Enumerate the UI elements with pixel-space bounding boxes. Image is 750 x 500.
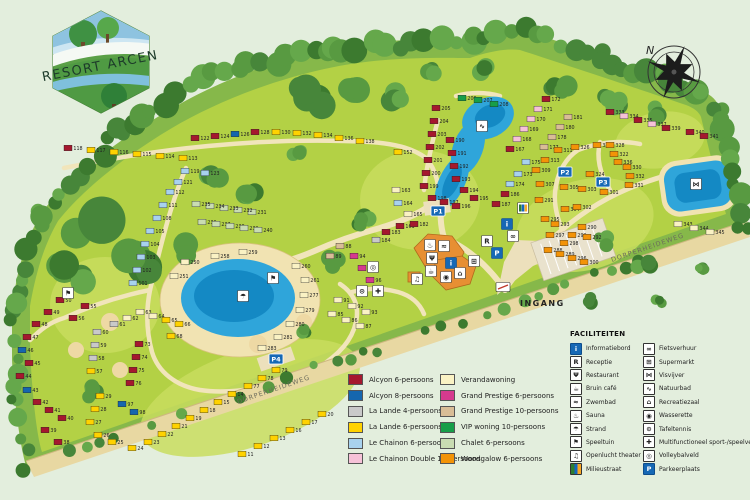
svg-text:42: 42 [42, 400, 48, 406]
svg-text:164: 164 [403, 201, 412, 207]
cabin-unit: 12 [254, 443, 270, 450]
facility-item-parkeerplaats: PParkeerplaats [643, 463, 750, 476]
svg-text:152: 152 [403, 150, 412, 156]
svg-text:208: 208 [499, 102, 508, 108]
svg-text:330: 330 [632, 165, 641, 171]
svg-text:201: 201 [433, 158, 442, 164]
svg-text:302: 302 [582, 205, 591, 211]
forest-blob [15, 434, 26, 445]
wasserette-icon: ◉ [441, 272, 452, 283]
forest-blob [94, 145, 117, 168]
forest-blob [354, 212, 368, 226]
svg-text:171: 171 [543, 107, 552, 113]
openlucht-theater-icon: ♫ [570, 450, 582, 462]
svg-text:◎: ◎ [370, 264, 376, 272]
svg-text:∿: ∿ [479, 123, 485, 131]
svg-text:11: 11 [247, 452, 253, 458]
svg-text:200: 200 [431, 171, 440, 177]
informatiebord-icon: i [502, 219, 513, 230]
forest-blob [430, 25, 455, 50]
forest-blob [483, 311, 491, 319]
svg-text:27: 27 [95, 420, 101, 426]
forest-blob [537, 25, 555, 43]
facility-label: Visvijver [659, 372, 684, 379]
svg-text:41: 41 [54, 408, 60, 414]
svg-text:102: 102 [142, 268, 151, 274]
svg-text:178: 178 [557, 135, 566, 141]
facility-label: Recreatiezaal [659, 399, 699, 406]
svg-text:29: 29 [105, 394, 111, 400]
svg-text:⚑: ⚑ [270, 275, 276, 283]
svg-text:108: 108 [162, 216, 171, 222]
forest-blob [82, 442, 93, 453]
volleybalveld-icon: ◎ [368, 262, 379, 273]
svg-text:187: 187 [501, 202, 510, 208]
cabin-unit: 117 [87, 147, 106, 154]
legend-label: Woodgalow 6-persoons [461, 455, 542, 463]
svg-text:132: 132 [302, 131, 311, 137]
facility-label: Parkeerplaats [659, 466, 700, 473]
facility-item-strand: ☂Strand [570, 422, 641, 435]
sauna-icon: ♨ [425, 240, 436, 251]
svg-text:25: 25 [117, 440, 123, 446]
svg-text:184: 184 [381, 238, 390, 244]
informatiebord-icon: i [570, 343, 582, 355]
facility-label: Sauna [586, 412, 605, 419]
svg-text:183: 183 [391, 230, 400, 236]
legend-swatch-vw [440, 374, 455, 385]
legend-swatch-l6 [348, 422, 363, 433]
svg-text:181: 181 [573, 115, 582, 121]
svg-text:⚑: ⚑ [65, 290, 71, 298]
forest-blob [49, 250, 79, 280]
tafeltennis-icon: ⊙ [643, 423, 655, 435]
svg-text:101: 101 [138, 281, 147, 287]
fietsverhuur-icon: ∞ [508, 231, 519, 242]
svg-text:12: 12 [263, 444, 269, 450]
forest-blob [498, 303, 511, 316]
svg-text:40: 40 [67, 416, 73, 422]
forest-blob [6, 293, 27, 314]
svg-text:298: 298 [569, 241, 578, 247]
svg-text:P3: P3 [598, 178, 607, 186]
facility-label: Receptie [586, 359, 612, 366]
legend-swatch-ch [440, 438, 455, 449]
svg-text:186: 186 [510, 192, 519, 198]
facility-item-fietsverhuur: ∞Fietsverhuur [643, 342, 750, 355]
forest-blob [695, 264, 703, 272]
legend-item-gp10: Grand Prestige 10-persoons [440, 404, 559, 420]
svg-text:196: 196 [461, 204, 470, 210]
svg-text:113: 113 [188, 156, 197, 162]
svg-text:i: i [506, 221, 508, 229]
forest-blob [341, 38, 367, 64]
legend-item-vw: Verandawoning [440, 372, 559, 388]
tafeltennis-icon: ⊙ [357, 286, 368, 297]
forest-blob [458, 319, 468, 329]
forest-blob [435, 321, 446, 332]
svg-text:39: 39 [50, 428, 56, 434]
forest-blob [8, 408, 27, 427]
recreatiezaal-icon: ⌂ [455, 268, 466, 279]
svg-text:297: 297 [555, 233, 564, 239]
svg-text:259: 259 [248, 250, 257, 256]
svg-text:114: 114 [165, 154, 174, 160]
svg-text:38: 38 [63, 440, 69, 446]
forest-blob [78, 197, 125, 244]
svg-text:119: 119 [190, 169, 199, 175]
svg-text:331: 331 [634, 183, 643, 189]
forest-blob [723, 163, 741, 181]
facility-label: Milieustraat [586, 466, 621, 473]
strand-icon: ☂ [570, 423, 582, 435]
legend-swatch-wg [440, 453, 455, 464]
forest-blob [30, 205, 52, 227]
facility-label: Multifunctioneel sport-/speelveld [659, 439, 750, 446]
facility-item-openlucht-theater: ♫Openlucht theater [570, 449, 641, 462]
svg-text:P: P [494, 250, 499, 258]
svg-text:169: 169 [529, 127, 538, 133]
forest-blob [107, 117, 128, 138]
facilities-legend-right: ∞Fietsverhuur⊞Supermarkt⋈Visvijver∿Natuu… [643, 342, 750, 476]
forest-blob [13, 354, 23, 364]
svg-text:124: 124 [220, 134, 229, 140]
visvijver-icon: ⋈ [691, 179, 702, 190]
svg-text:205: 205 [441, 106, 450, 112]
svg-text:199: 199 [429, 184, 438, 190]
svg-text:94: 94 [359, 254, 365, 260]
svg-text:300: 300 [589, 260, 598, 266]
svg-text:232: 232 [243, 208, 252, 214]
wasserette-icon: ◉ [643, 410, 655, 422]
svg-text:◉: ◉ [443, 274, 449, 282]
svg-text:22: 22 [167, 432, 173, 438]
forest-blob [147, 421, 156, 430]
svg-text:23: 23 [153, 440, 159, 446]
svg-text:46: 46 [27, 348, 33, 354]
compass-north-label: N [646, 44, 654, 57]
cabin-unit: 118 [64, 145, 83, 152]
legend-swatch-a6 [348, 374, 363, 385]
svg-text:292: 292 [592, 235, 601, 241]
forest-blob [17, 261, 34, 278]
svg-text:∞: ∞ [510, 233, 516, 241]
svg-text:88: 88 [345, 244, 351, 250]
svg-text:130: 130 [281, 130, 290, 136]
legend-label: Alcyon 6-persoons [369, 376, 434, 384]
forest-blob [426, 66, 442, 82]
svg-text:19: 19 [195, 416, 201, 422]
facility-label: Volleybalveld [659, 452, 699, 459]
openlucht-theater-icon: ♫ [412, 274, 423, 285]
legend-swatch-gp10 [440, 406, 455, 417]
svg-text:341: 341 [709, 134, 718, 140]
forest-blob [484, 20, 508, 44]
svg-text:87: 87 [365, 324, 371, 330]
compass-rose: N [638, 36, 710, 108]
svg-text:180: 180 [565, 125, 574, 131]
accommodation-legend-right: VerandawoningGrand Prestige 6-persoonsGr… [440, 372, 559, 467]
svg-text:283: 283 [267, 346, 276, 352]
facility-item-recreatiezaal: ⌂Recreatiezaal [643, 396, 750, 409]
svg-text:⊞: ⊞ [471, 258, 477, 266]
forest-blob [477, 60, 493, 76]
forest-blob [23, 443, 36, 456]
forest-blob [239, 185, 257, 203]
legend-item-vip: VIP woning 10-persoons [440, 419, 559, 435]
svg-text:⌂: ⌂ [457, 270, 462, 278]
cabin-unit: 24 [128, 445, 144, 452]
forest-blob [600, 90, 617, 107]
svg-text:62: 62 [132, 316, 138, 322]
forest-blob [583, 296, 595, 308]
sauna-icon: ♨ [570, 410, 582, 422]
svg-text:167: 167 [515, 147, 524, 153]
svg-text:R: R [484, 238, 490, 246]
svg-text:⋈: ⋈ [693, 181, 700, 189]
informatiebord-icon: i [446, 258, 457, 269]
speeltuin-icon: ⚑ [63, 288, 74, 299]
svg-text:79: 79 [281, 368, 287, 374]
svg-text:168: 168 [522, 137, 531, 143]
svg-text:279: 279 [305, 308, 314, 314]
svg-text:98: 98 [139, 410, 145, 416]
entrance-label: INGANG [520, 299, 565, 308]
legend-label: Verandawoning [461, 376, 515, 384]
svg-text:280: 280 [295, 322, 304, 328]
svg-text:61: 61 [119, 322, 125, 328]
svg-text:49: 49 [53, 310, 59, 316]
svg-text:93: 93 [371, 310, 377, 316]
svg-text:195: 195 [479, 196, 488, 202]
svg-text:175: 175 [531, 160, 540, 166]
forest-blob [4, 313, 17, 326]
facility-label: Zwembad [586, 399, 616, 406]
facility-item-informatiebord: iInformatiebord [570, 342, 641, 355]
facility-item-speeltuin: ⚑Speeltuin [570, 436, 641, 449]
svg-text:122: 122 [200, 136, 209, 142]
svg-text:126: 126 [240, 132, 249, 138]
facility-label: Informatiebord [586, 345, 631, 352]
svg-text:202: 202 [435, 145, 444, 151]
svg-text:191: 191 [457, 151, 466, 157]
svg-text:☕: ☕ [428, 268, 434, 276]
legend-label: Le Chainon 6-persoons [369, 439, 449, 447]
svg-text:235: 235 [201, 202, 210, 208]
svg-text:251: 251 [179, 274, 188, 280]
facility-label: Bruin café [586, 385, 617, 392]
svg-text:97: 97 [127, 402, 133, 408]
svg-text:P1: P1 [433, 207, 443, 215]
svg-text:138: 138 [365, 139, 374, 145]
receptie-icon: R [570, 356, 582, 368]
facilities-legend: FACILITEITEN iInformatiebordRReceptieΨRe… [570, 330, 748, 342]
svg-text:44: 44 [25, 374, 31, 380]
svg-text:≈: ≈ [441, 243, 447, 251]
parking-sign-p3: P3 [596, 177, 610, 187]
facility-label: Supermarkt [659, 359, 694, 366]
facility-item-volleybalveld: ◎Volleybalveld [643, 449, 750, 462]
forest-blob [600, 238, 614, 252]
resort-map-page: 1181171161151141131221241261281301321341… [0, 0, 750, 500]
receptie-icon: R [482, 236, 493, 247]
svg-text:163: 163 [401, 188, 410, 194]
facility-label: Openlucht theater [586, 452, 641, 459]
svg-text:112: 112 [175, 190, 184, 196]
recreatiezaal-icon: ⌂ [643, 396, 655, 408]
cabin-unit: 20 [318, 411, 334, 418]
svg-text:345: 345 [715, 230, 724, 236]
legend-item-gp6: Grand Prestige 6-persoons [440, 388, 559, 404]
legend-label: Alcyon 8-persoons [369, 392, 434, 400]
facilities-legend-left: iInformatiebordRReceptieΨRestaurant☕Brui… [570, 342, 641, 476]
zwembad-icon: ≈ [570, 396, 582, 408]
facility-item-bruin-cafe: ☕Bruin café [570, 382, 641, 395]
svg-text:117: 117 [96, 148, 105, 154]
parking-sign-p2: P2 [558, 167, 572, 177]
svg-text:74: 74 [141, 355, 147, 361]
forest-blob [372, 33, 396, 57]
svg-text:328: 328 [615, 143, 624, 149]
forest-blob [590, 268, 599, 277]
svg-text:43: 43 [32, 388, 38, 394]
legend-item-wg: Woodgalow 6-persoons [440, 451, 559, 467]
forest-blob [655, 296, 664, 305]
svg-text:305: 305 [569, 185, 578, 191]
speeltuin-icon: ⚑ [570, 436, 582, 448]
svg-text:322: 322 [619, 152, 628, 158]
facility-item-restaurant: ΨRestaurant [570, 369, 641, 382]
forest-blob [82, 390, 95, 403]
forest-blob [16, 463, 31, 478]
forest-blob [547, 283, 559, 295]
forest-blob [7, 334, 21, 348]
svg-text:174: 174 [515, 182, 524, 188]
facility-label: Wasserette [659, 412, 693, 419]
svg-text:47: 47 [32, 335, 38, 341]
facility-item-tafeltennis: ⊙Tafeltennis [643, 422, 750, 435]
svg-text:50: 50 [65, 298, 71, 304]
forest-blob [291, 75, 321, 105]
supermarkt-icon: ⊞ [469, 256, 480, 267]
svg-text:58: 58 [98, 356, 104, 362]
forest-blob [250, 52, 269, 71]
forest-blob [450, 36, 463, 49]
svg-text:260: 260 [301, 264, 310, 270]
svg-text:105: 105 [155, 229, 164, 235]
svg-text:i: i [450, 260, 452, 268]
forest-blob [392, 91, 409, 108]
svg-text:190: 190 [455, 138, 464, 144]
legend-label: La Lande 6-persoons [369, 423, 442, 431]
natuurbad-icon: ∿ [643, 383, 655, 395]
facility-label: Strand [586, 426, 606, 433]
svg-text:118: 118 [73, 146, 82, 152]
svg-text:165: 165 [413, 212, 422, 218]
svg-text:P2: P2 [560, 168, 569, 176]
forest-blob [421, 326, 430, 335]
entrance-gate-icon [496, 283, 510, 292]
facility-item-visvijver: ⋈Visvijver [643, 369, 750, 382]
svg-text:73: 73 [144, 342, 150, 348]
parkeerplaats-icon: P [643, 463, 655, 475]
legend-label: La Lande 4-persoons [369, 407, 442, 415]
svg-text:277: 277 [309, 293, 318, 299]
svg-text:281: 281 [283, 335, 292, 341]
svg-text:111: 111 [168, 203, 177, 209]
svg-text:26: 26 [103, 433, 109, 439]
svg-text:☂: ☂ [240, 293, 246, 301]
forest-blob [560, 279, 569, 288]
volleybalveld-icon: ◎ [643, 450, 655, 462]
visvijver-icon: ⋈ [643, 369, 655, 381]
svg-text:290: 290 [587, 225, 596, 231]
svg-text:173: 173 [523, 172, 532, 178]
svg-text:204: 204 [439, 119, 448, 125]
forest-blob [607, 266, 617, 276]
svg-text:313: 313 [550, 158, 559, 164]
svg-text:250: 250 [190, 260, 199, 266]
fietsverhuur-icon: ∞ [643, 343, 655, 355]
forest-blob [79, 158, 96, 175]
svg-text:123: 123 [210, 171, 219, 177]
svg-text:193: 193 [461, 177, 470, 183]
legend-label: VIP woning 10-persoons [461, 423, 545, 431]
parking-sign-p4: P4 [269, 354, 283, 364]
svg-text:240: 240 [263, 228, 272, 234]
restaurant-icon: Ψ [570, 369, 582, 381]
svg-text:55: 55 [90, 304, 96, 310]
svg-text:60: 60 [102, 330, 108, 336]
facility-item-supermarkt: ⊞Supermarkt [643, 355, 750, 368]
natuurbad-icon: ∿ [477, 121, 488, 132]
cabin-unit: 11 [238, 451, 254, 458]
svg-text:76: 76 [135, 381, 141, 387]
svg-text:68: 68 [176, 334, 182, 340]
svg-text:66: 66 [184, 322, 190, 328]
milieustraat-icon [518, 203, 529, 214]
cabin-unit: 13 [270, 435, 286, 442]
svg-text:✚: ✚ [375, 288, 381, 296]
resort-logo: RESORT ARCEN [36, 8, 166, 116]
legend-swatch-gp6 [440, 390, 455, 401]
zwembad-icon: ≈ [439, 241, 450, 252]
facility-item-natuurbad: ∿Natuurbad [643, 382, 750, 395]
facility-label: Speeltuin [586, 439, 614, 446]
svg-text:103: 103 [146, 255, 155, 261]
facility-item-multifunctioneel: ✚Multifunctioneel sport-/speelveld [643, 436, 750, 449]
facility-item-wasserette: ◉Wasserette [643, 409, 750, 422]
forest-blob [332, 356, 343, 367]
facility-label: Natuurbad [659, 385, 691, 392]
forest-blob [26, 230, 42, 246]
forest-blob [359, 347, 368, 356]
svg-text:24: 24 [137, 446, 143, 452]
svg-text:136: 136 [344, 136, 353, 142]
svg-text:104: 104 [150, 242, 159, 248]
legend-item-ch: Chalet 6-persoons [440, 435, 559, 451]
svg-text:21: 21 [181, 424, 187, 430]
svg-text:59: 59 [100, 343, 106, 349]
svg-text:16: 16 [295, 428, 301, 434]
facility-item-receptie: RReceptie [570, 355, 641, 368]
svg-text:♫: ♫ [414, 276, 420, 284]
forest-blob [292, 146, 306, 160]
parking-sign-p1: P1 [431, 206, 445, 216]
svg-text:P4: P4 [271, 355, 281, 363]
svg-text:78: 78 [267, 376, 273, 382]
svg-text:115: 115 [142, 152, 151, 158]
